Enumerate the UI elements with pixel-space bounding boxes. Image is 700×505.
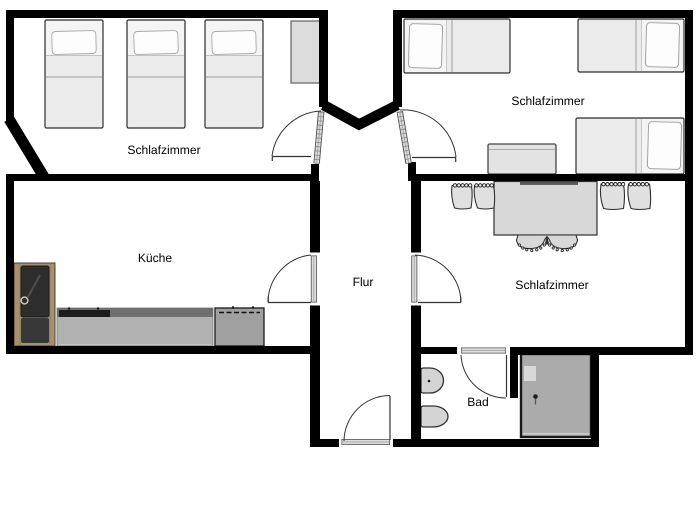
svg-text:Küche: Küche [138, 251, 173, 265]
svg-text:Schlafzimmer: Schlafzimmer [515, 278, 588, 292]
svg-text:Schlafzimmer: Schlafzimmer [511, 94, 584, 108]
svg-text:Bad: Bad [467, 395, 489, 409]
svg-text:Flur: Flur [353, 275, 374, 289]
svg-text:Schlafzimmer: Schlafzimmer [127, 143, 200, 157]
